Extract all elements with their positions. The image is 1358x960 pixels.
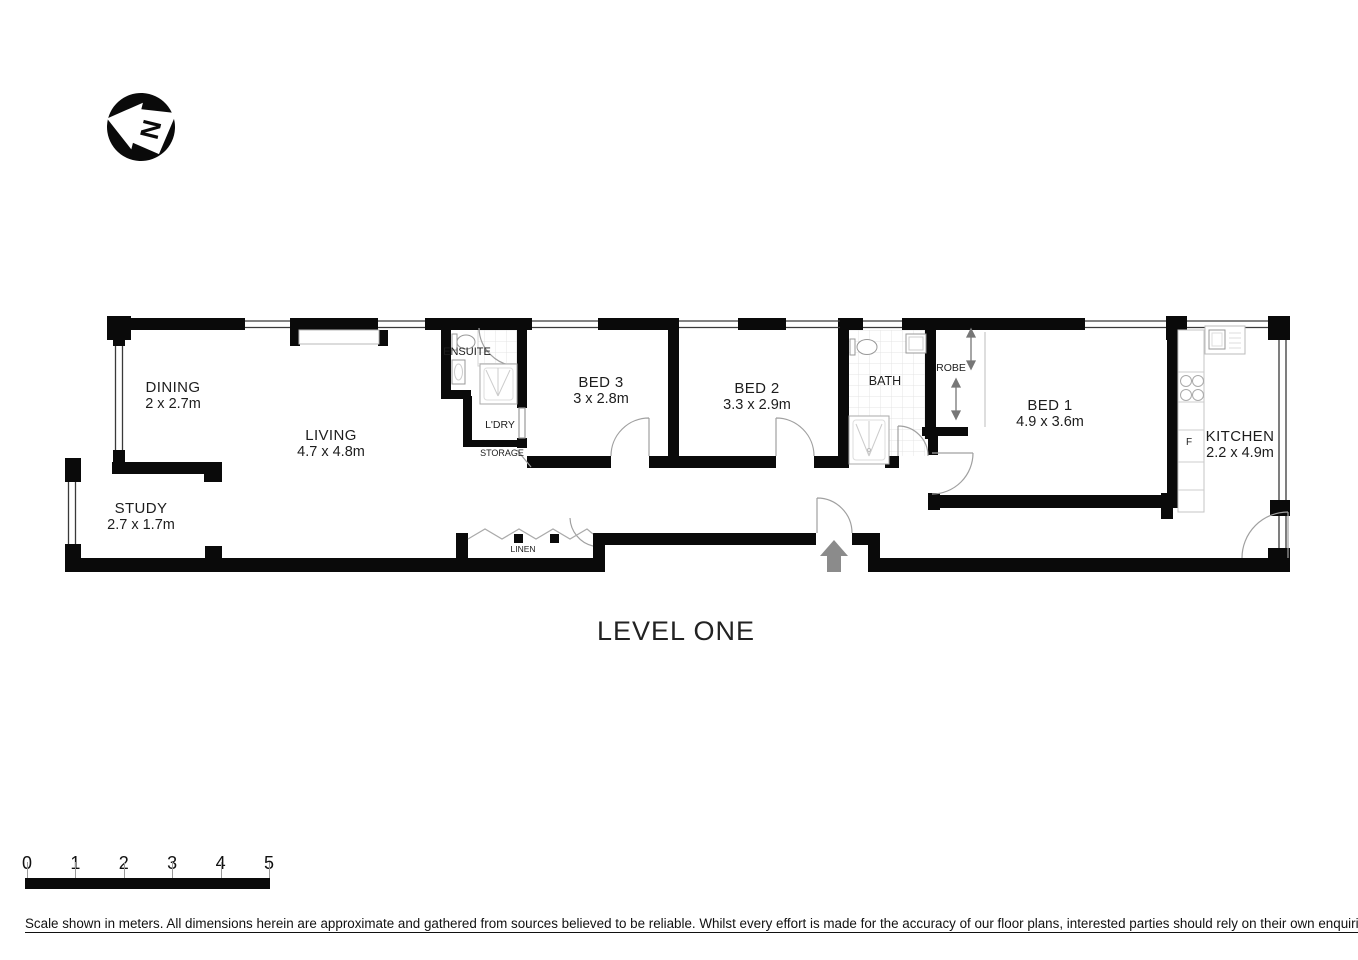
room-label-dining: DINING 2 x 2.7m: [145, 379, 201, 413]
room-label-study: STUDY 2.7 x 1.7m: [107, 500, 175, 534]
entry-arrow-icon: [820, 540, 848, 572]
room-label-bath: BATH: [869, 374, 901, 388]
fridge-label: F: [1186, 437, 1192, 448]
room-label-bed1: BED 1 4.9 x 3.6m: [1016, 397, 1084, 431]
bed1-door: [932, 453, 973, 494]
kitchen-counter: [1178, 330, 1204, 512]
scale-bar-rule: [25, 878, 270, 889]
floor-plan-page: N: [0, 0, 1358, 960]
robe-rail-arrows: [952, 329, 985, 427]
toilet-icon: [857, 340, 877, 355]
room-label-storage: STORAGE: [480, 448, 524, 458]
disclaimer-text: Scale shown in meters. All dimensions he…: [25, 916, 1358, 931]
floor-plan-drawing: N: [0, 0, 1358, 960]
walls: [65, 316, 1290, 572]
room-label-linen: LINEN: [510, 544, 535, 554]
linen-bifold-doors: [468, 529, 593, 543]
north-arrow-icon: N: [99, 86, 182, 169]
bed3-door: [611, 418, 649, 456]
room-label-ldry: L'DRY: [485, 419, 515, 431]
level-title: LEVEL ONE: [597, 616, 755, 647]
room-label-bed2: BED 2 3.3 x 2.9m: [723, 380, 791, 414]
room-label-bed3: BED 3 3 x 2.8m: [573, 374, 629, 408]
toilet-tank-icon: [850, 339, 855, 355]
kitchen-fixtures: [1178, 326, 1245, 512]
entry-door: [817, 498, 852, 533]
fireplace: [290, 330, 388, 346]
room-label-ensuite: ENSUITE: [443, 346, 491, 358]
ldry-door-leaf: [519, 408, 525, 438]
scale-bar: 0 1 2 3 4 5: [25, 853, 271, 891]
bed2-door: [776, 418, 814, 456]
room-label-kitchen: KITCHEN 2.2 x 4.9m: [1206, 428, 1275, 462]
room-label-living: LIVING 4.7 x 4.8m: [297, 427, 365, 461]
room-label-robe: ROBE: [936, 362, 966, 374]
